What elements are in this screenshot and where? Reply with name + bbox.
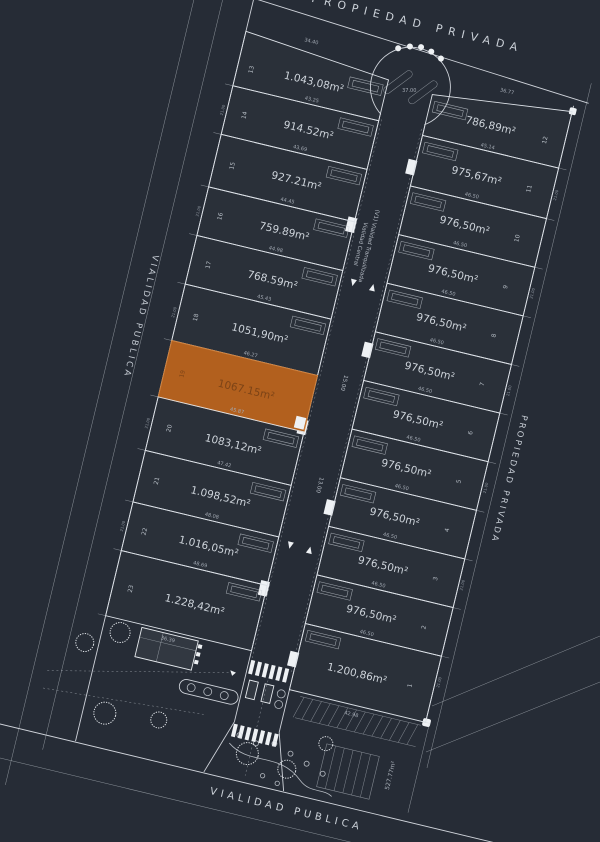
svg-text:21.00: 21.00 [119,520,127,532]
parking-block [317,744,380,799]
lot-front-dim: 34.40 [304,37,319,46]
svg-text:21.00: 21.00 [170,306,178,318]
road-width-upper: 15.00 [339,374,349,391]
label-vialidad-publica-left: VIALIDAD PUBLICA [121,254,160,380]
road-width-lower: 13.00 [314,476,324,493]
southeast-road [426,636,600,752]
amenity-area-label: 527.77m² [384,760,398,791]
svg-text:21.00: 21.00 [219,104,227,116]
gate-booths [245,680,287,709]
svg-text:21.00: 21.00 [144,417,152,429]
cul-de-sac-dim: 37.00 [402,88,416,94]
crosswalk-upper [248,660,289,683]
site-plan-drawing: PROPIEDAD PRIVADA PROPIEDAD PRIVADA VIAL… [0,0,600,842]
label-propiedad-privada-top: PROPIEDAD PRIVADA [310,0,524,55]
lot-front-dim: 36.77 [499,87,514,96]
site-plan-screenshot: PROPIEDAD PRIVADA PROPIEDAD PRIVADA VIAL… [0,0,600,842]
median-island [178,678,240,706]
sight-arrow [229,670,236,676]
svg-text:21.00: 21.00 [194,205,202,217]
